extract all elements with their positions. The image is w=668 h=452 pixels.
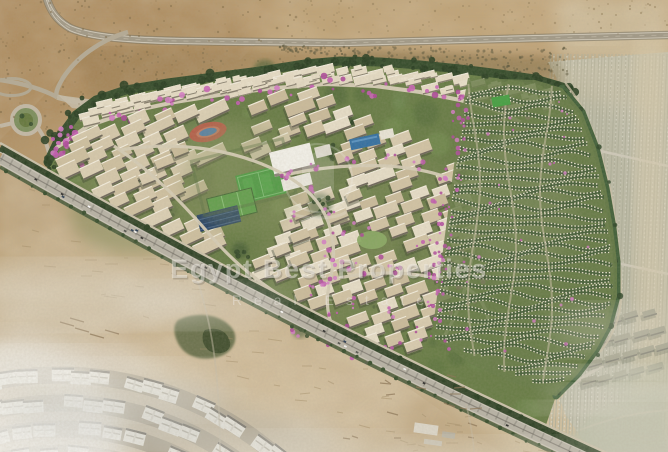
svg-text:Real Estate: Real Estate (232, 292, 436, 308)
svg-text:Egypt Best Properties: Egypt Best Properties (170, 254, 488, 284)
